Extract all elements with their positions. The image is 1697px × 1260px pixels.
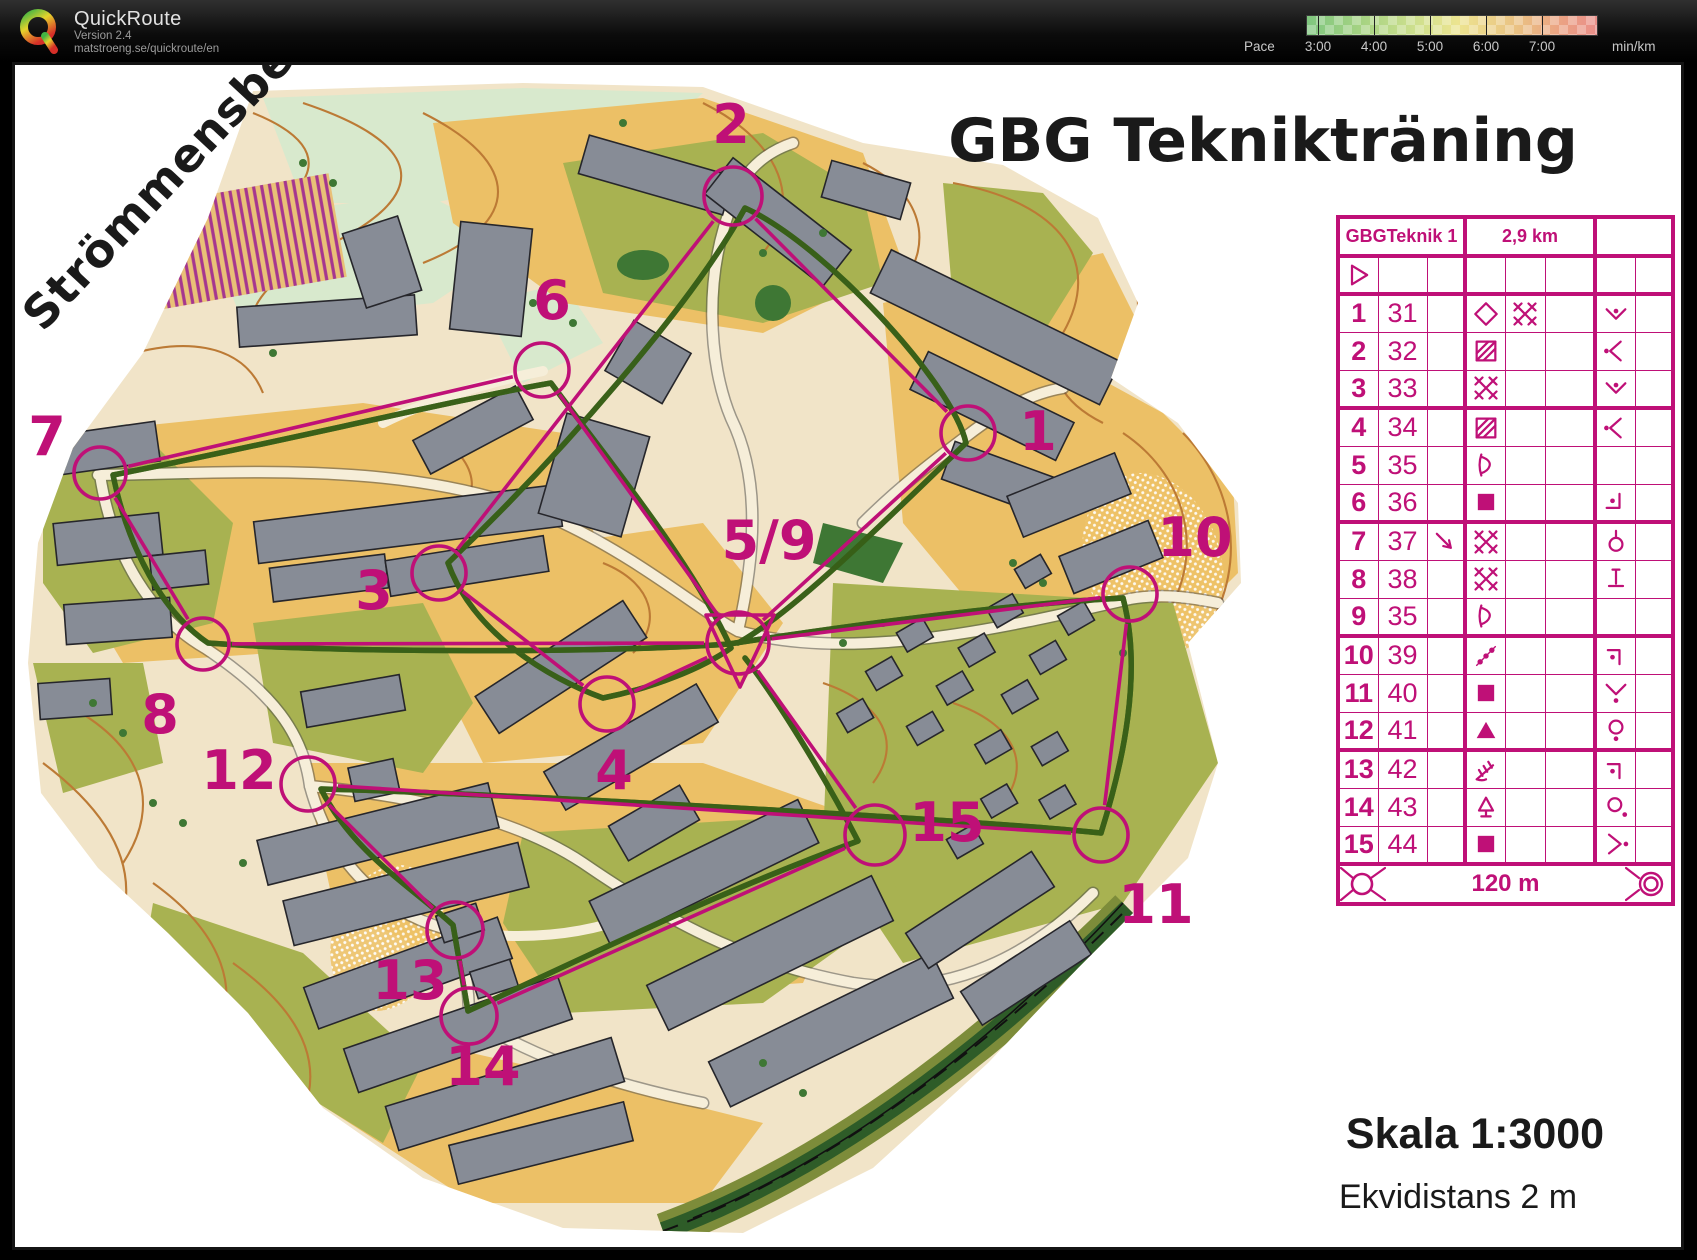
dimension-symbol — [1545, 446, 1595, 484]
pace-tick-label: 3:00 — [1305, 39, 1331, 54]
feature-symbol — [1465, 560, 1505, 598]
control-number: 3 — [1338, 370, 1378, 408]
course-name: GBGTeknik 1 — [1338, 217, 1465, 256]
header-spare — [1595, 217, 1673, 256]
control-number: 6 — [1338, 484, 1378, 522]
other-symbol — [1635, 674, 1673, 712]
course-leg-8-c59 — [232, 643, 704, 644]
other-symbol — [1635, 712, 1673, 750]
col-c-symbol — [1427, 294, 1465, 332]
control-label-4: 4 — [595, 739, 633, 802]
control-number: 12 — [1338, 712, 1378, 750]
location-symbol — [1595, 674, 1635, 712]
other-symbol — [1635, 636, 1673, 674]
control-code: 31 — [1378, 294, 1427, 332]
map-frame: 5/91234678101112131415 Strömmensberg GBG… — [12, 62, 1684, 1250]
control-label-11: 11 — [1118, 873, 1193, 936]
cell — [1505, 256, 1545, 294]
location-symbol — [1595, 370, 1635, 408]
appearance-symbol — [1505, 484, 1545, 522]
control-code: 40 — [1378, 674, 1427, 712]
control-row-6: 636 — [1338, 484, 1673, 522]
other-symbol — [1635, 332, 1673, 370]
appearance-symbol — [1505, 294, 1545, 332]
col-c-symbol — [1427, 712, 1465, 750]
control-label-1: 1 — [1019, 400, 1057, 463]
control-number: 8 — [1338, 560, 1378, 598]
feature-symbol — [1465, 522, 1505, 560]
finish-cell: 120 m — [1338, 864, 1673, 904]
pace-tick-label: 7:00 — [1529, 39, 1555, 54]
finish-funnel-left — [1340, 866, 1386, 902]
control-number: 7 — [1338, 522, 1378, 560]
scale-label: Skala 1:3000 — [1346, 1110, 1604, 1158]
pace-tick — [1430, 16, 1431, 35]
location-symbol — [1595, 750, 1635, 788]
col-c-symbol — [1427, 560, 1465, 598]
feature-symbol — [1465, 636, 1505, 674]
feature-symbol — [1465, 408, 1505, 446]
control-label-c59: 5/9 — [722, 509, 817, 572]
feature-symbol — [1465, 750, 1505, 788]
control-code: 38 — [1378, 560, 1427, 598]
control-code: 35 — [1378, 598, 1427, 636]
map-title: GBG Teknikträning — [948, 106, 1578, 176]
pace-tick — [1486, 16, 1487, 35]
control-row-2: 232 — [1338, 332, 1673, 370]
dimension-symbol — [1545, 408, 1595, 446]
cell — [1378, 256, 1427, 294]
pace-tick — [1542, 16, 1543, 35]
dimension-symbol — [1545, 636, 1595, 674]
control-number: 1 — [1338, 294, 1378, 332]
start-triangle-icon — [1338, 256, 1378, 294]
col-c-symbol — [1427, 370, 1465, 408]
other-symbol — [1635, 370, 1673, 408]
finish-circles-icon — [1625, 866, 1671, 902]
other-symbol — [1635, 598, 1673, 636]
finish-row: 120 m — [1338, 864, 1673, 904]
dimension-symbol — [1545, 560, 1595, 598]
control-code: 44 — [1378, 826, 1427, 864]
col-c-symbol — [1427, 788, 1465, 826]
other-symbol — [1635, 560, 1673, 598]
feature-symbol — [1465, 788, 1505, 826]
control-row-1: 131 — [1338, 294, 1673, 332]
title-bar: QuickRoute Version 2.4 matstroeng.se/qui… — [0, 0, 1697, 62]
appearance-symbol — [1505, 674, 1545, 712]
dimension-symbol — [1545, 332, 1595, 370]
control-label-10: 10 — [1157, 506, 1232, 569]
location-symbol — [1595, 408, 1635, 446]
location-symbol — [1595, 826, 1635, 864]
col-c-symbol — [1427, 674, 1465, 712]
feature-symbol — [1465, 370, 1505, 408]
pace-legend-gradient — [1307, 16, 1597, 35]
control-code: 32 — [1378, 332, 1427, 370]
control-row-5: 535 — [1338, 446, 1673, 484]
col-c-symbol — [1427, 332, 1465, 370]
dimension-symbol — [1545, 522, 1595, 560]
control-code: 43 — [1378, 788, 1427, 826]
control-number: 5 — [1338, 446, 1378, 484]
appearance-symbol — [1505, 826, 1545, 864]
app-title: QuickRoute — [74, 8, 182, 31]
quickroute-logo-icon — [14, 6, 64, 58]
location-symbol — [1595, 522, 1635, 560]
app-version: Version 2.4 — [74, 30, 132, 42]
control-label-12: 12 — [201, 739, 276, 802]
location-symbol — [1595, 484, 1635, 522]
control-row-13: 1342 — [1338, 750, 1673, 788]
location-symbol — [1595, 332, 1635, 370]
cell — [1595, 256, 1635, 294]
location-symbol — [1595, 636, 1635, 674]
control-row-12: 1241 — [1338, 712, 1673, 750]
dimension-symbol — [1545, 484, 1595, 522]
col-c-symbol — [1427, 446, 1465, 484]
pace-tick — [1374, 16, 1375, 35]
dimension-symbol — [1545, 294, 1595, 332]
control-row-15: 1544 — [1338, 826, 1673, 864]
card-header-row: GBGTeknik 12,9 km — [1338, 217, 1673, 256]
control-number: 14 — [1338, 788, 1378, 826]
feature-symbol — [1465, 712, 1505, 750]
control-row-8: 838 — [1338, 560, 1673, 598]
cell — [1465, 256, 1505, 294]
control-number: 15 — [1338, 826, 1378, 864]
feature-symbol — [1465, 826, 1505, 864]
feature-symbol — [1465, 294, 1505, 332]
appearance-symbol — [1505, 408, 1545, 446]
control-number: 10 — [1338, 636, 1378, 674]
control-code: 42 — [1378, 750, 1427, 788]
dimension-symbol — [1545, 788, 1595, 826]
appearance-symbol — [1505, 788, 1545, 826]
pace-label: Pace — [1244, 39, 1275, 54]
control-label-15: 15 — [909, 791, 984, 854]
appearance-symbol — [1505, 712, 1545, 750]
other-symbol — [1635, 826, 1673, 864]
pace-tick-label: 5:00 — [1417, 39, 1443, 54]
col-c-symbol — [1427, 408, 1465, 446]
col-c-symbol — [1427, 484, 1465, 522]
col-c-symbol — [1427, 826, 1465, 864]
appearance-symbol — [1505, 750, 1545, 788]
appearance-symbol — [1505, 636, 1545, 674]
control-row-3: 333 — [1338, 370, 1673, 408]
control-number: 2 — [1338, 332, 1378, 370]
dimension-symbol — [1545, 826, 1595, 864]
pace-tick-label: 6:00 — [1473, 39, 1499, 54]
dimension-symbol — [1545, 712, 1595, 750]
cell — [1545, 256, 1595, 294]
col-c-symbol — [1427, 598, 1465, 636]
appearance-symbol — [1505, 446, 1545, 484]
appearance-symbol — [1505, 522, 1545, 560]
location-symbol — [1595, 712, 1635, 750]
control-row-9: 935 — [1338, 598, 1673, 636]
control-code: 37 — [1378, 522, 1427, 560]
control-description-card: GBGTeknik 12,9 km13123233343453563673783… — [1336, 215, 1675, 906]
equidistance-label: Ekvidistans 2 m — [1339, 1178, 1577, 1216]
other-symbol — [1635, 788, 1673, 826]
feature-symbol — [1465, 446, 1505, 484]
col-c-symbol — [1427, 522, 1465, 560]
cell — [1635, 256, 1673, 294]
location-symbol — [1595, 294, 1635, 332]
control-code: 41 — [1378, 712, 1427, 750]
control-code: 33 — [1378, 370, 1427, 408]
finish-distance: 120 m — [1386, 870, 1625, 898]
control-code: 34 — [1378, 408, 1427, 446]
control-number: 4 — [1338, 408, 1378, 446]
other-symbol — [1635, 750, 1673, 788]
feature-symbol — [1465, 484, 1505, 522]
start-row — [1338, 256, 1673, 294]
control-number: 13 — [1338, 750, 1378, 788]
app-url: matstroeng.se/quickroute/en — [74, 43, 219, 55]
other-symbol — [1635, 522, 1673, 560]
other-symbol — [1635, 446, 1673, 484]
control-row-14: 1443 — [1338, 788, 1673, 826]
control-code: 36 — [1378, 484, 1427, 522]
control-number: 9 — [1338, 598, 1378, 636]
dimension-symbol — [1545, 598, 1595, 636]
control-code: 35 — [1378, 446, 1427, 484]
location-symbol — [1595, 598, 1635, 636]
control-number: 11 — [1338, 674, 1378, 712]
appearance-symbol — [1505, 598, 1545, 636]
appearance-symbol — [1505, 370, 1545, 408]
dimension-symbol — [1545, 750, 1595, 788]
control-code: 39 — [1378, 636, 1427, 674]
dimension-symbol — [1545, 370, 1595, 408]
feature-symbol — [1465, 332, 1505, 370]
control-row-7: 737 — [1338, 522, 1673, 560]
control-row-11: 1140 — [1338, 674, 1673, 712]
appearance-symbol — [1505, 332, 1545, 370]
other-symbol — [1635, 408, 1673, 446]
quickroute-window: QuickRoute Version 2.4 matstroeng.se/qui… — [0, 0, 1697, 1260]
control-row-4: 434 — [1338, 408, 1673, 446]
location-symbol — [1595, 788, 1635, 826]
control-label-13: 13 — [372, 949, 447, 1012]
location-symbol — [1595, 446, 1635, 484]
location-symbol — [1595, 560, 1635, 598]
control-label-7: 7 — [28, 405, 66, 468]
control-label-6: 6 — [533, 269, 571, 332]
cell — [1427, 256, 1465, 294]
pace-tick — [1318, 16, 1319, 35]
course-length: 2,9 km — [1465, 217, 1595, 256]
dimension-symbol — [1545, 674, 1595, 712]
control-label-14: 14 — [445, 1035, 520, 1098]
feature-symbol — [1465, 598, 1505, 636]
feature-symbol — [1465, 674, 1505, 712]
other-symbol — [1635, 484, 1673, 522]
control-label-8: 8 — [141, 683, 179, 746]
col-c-symbol — [1427, 636, 1465, 674]
appearance-symbol — [1505, 560, 1545, 598]
pace-unit-label: min/km — [1612, 39, 1656, 54]
pace-tick-label: 4:00 — [1361, 39, 1387, 54]
control-row-10: 1039 — [1338, 636, 1673, 674]
control-label-3: 3 — [355, 559, 393, 622]
other-symbol — [1635, 294, 1673, 332]
col-c-symbol — [1427, 750, 1465, 788]
control-label-2: 2 — [712, 93, 750, 156]
